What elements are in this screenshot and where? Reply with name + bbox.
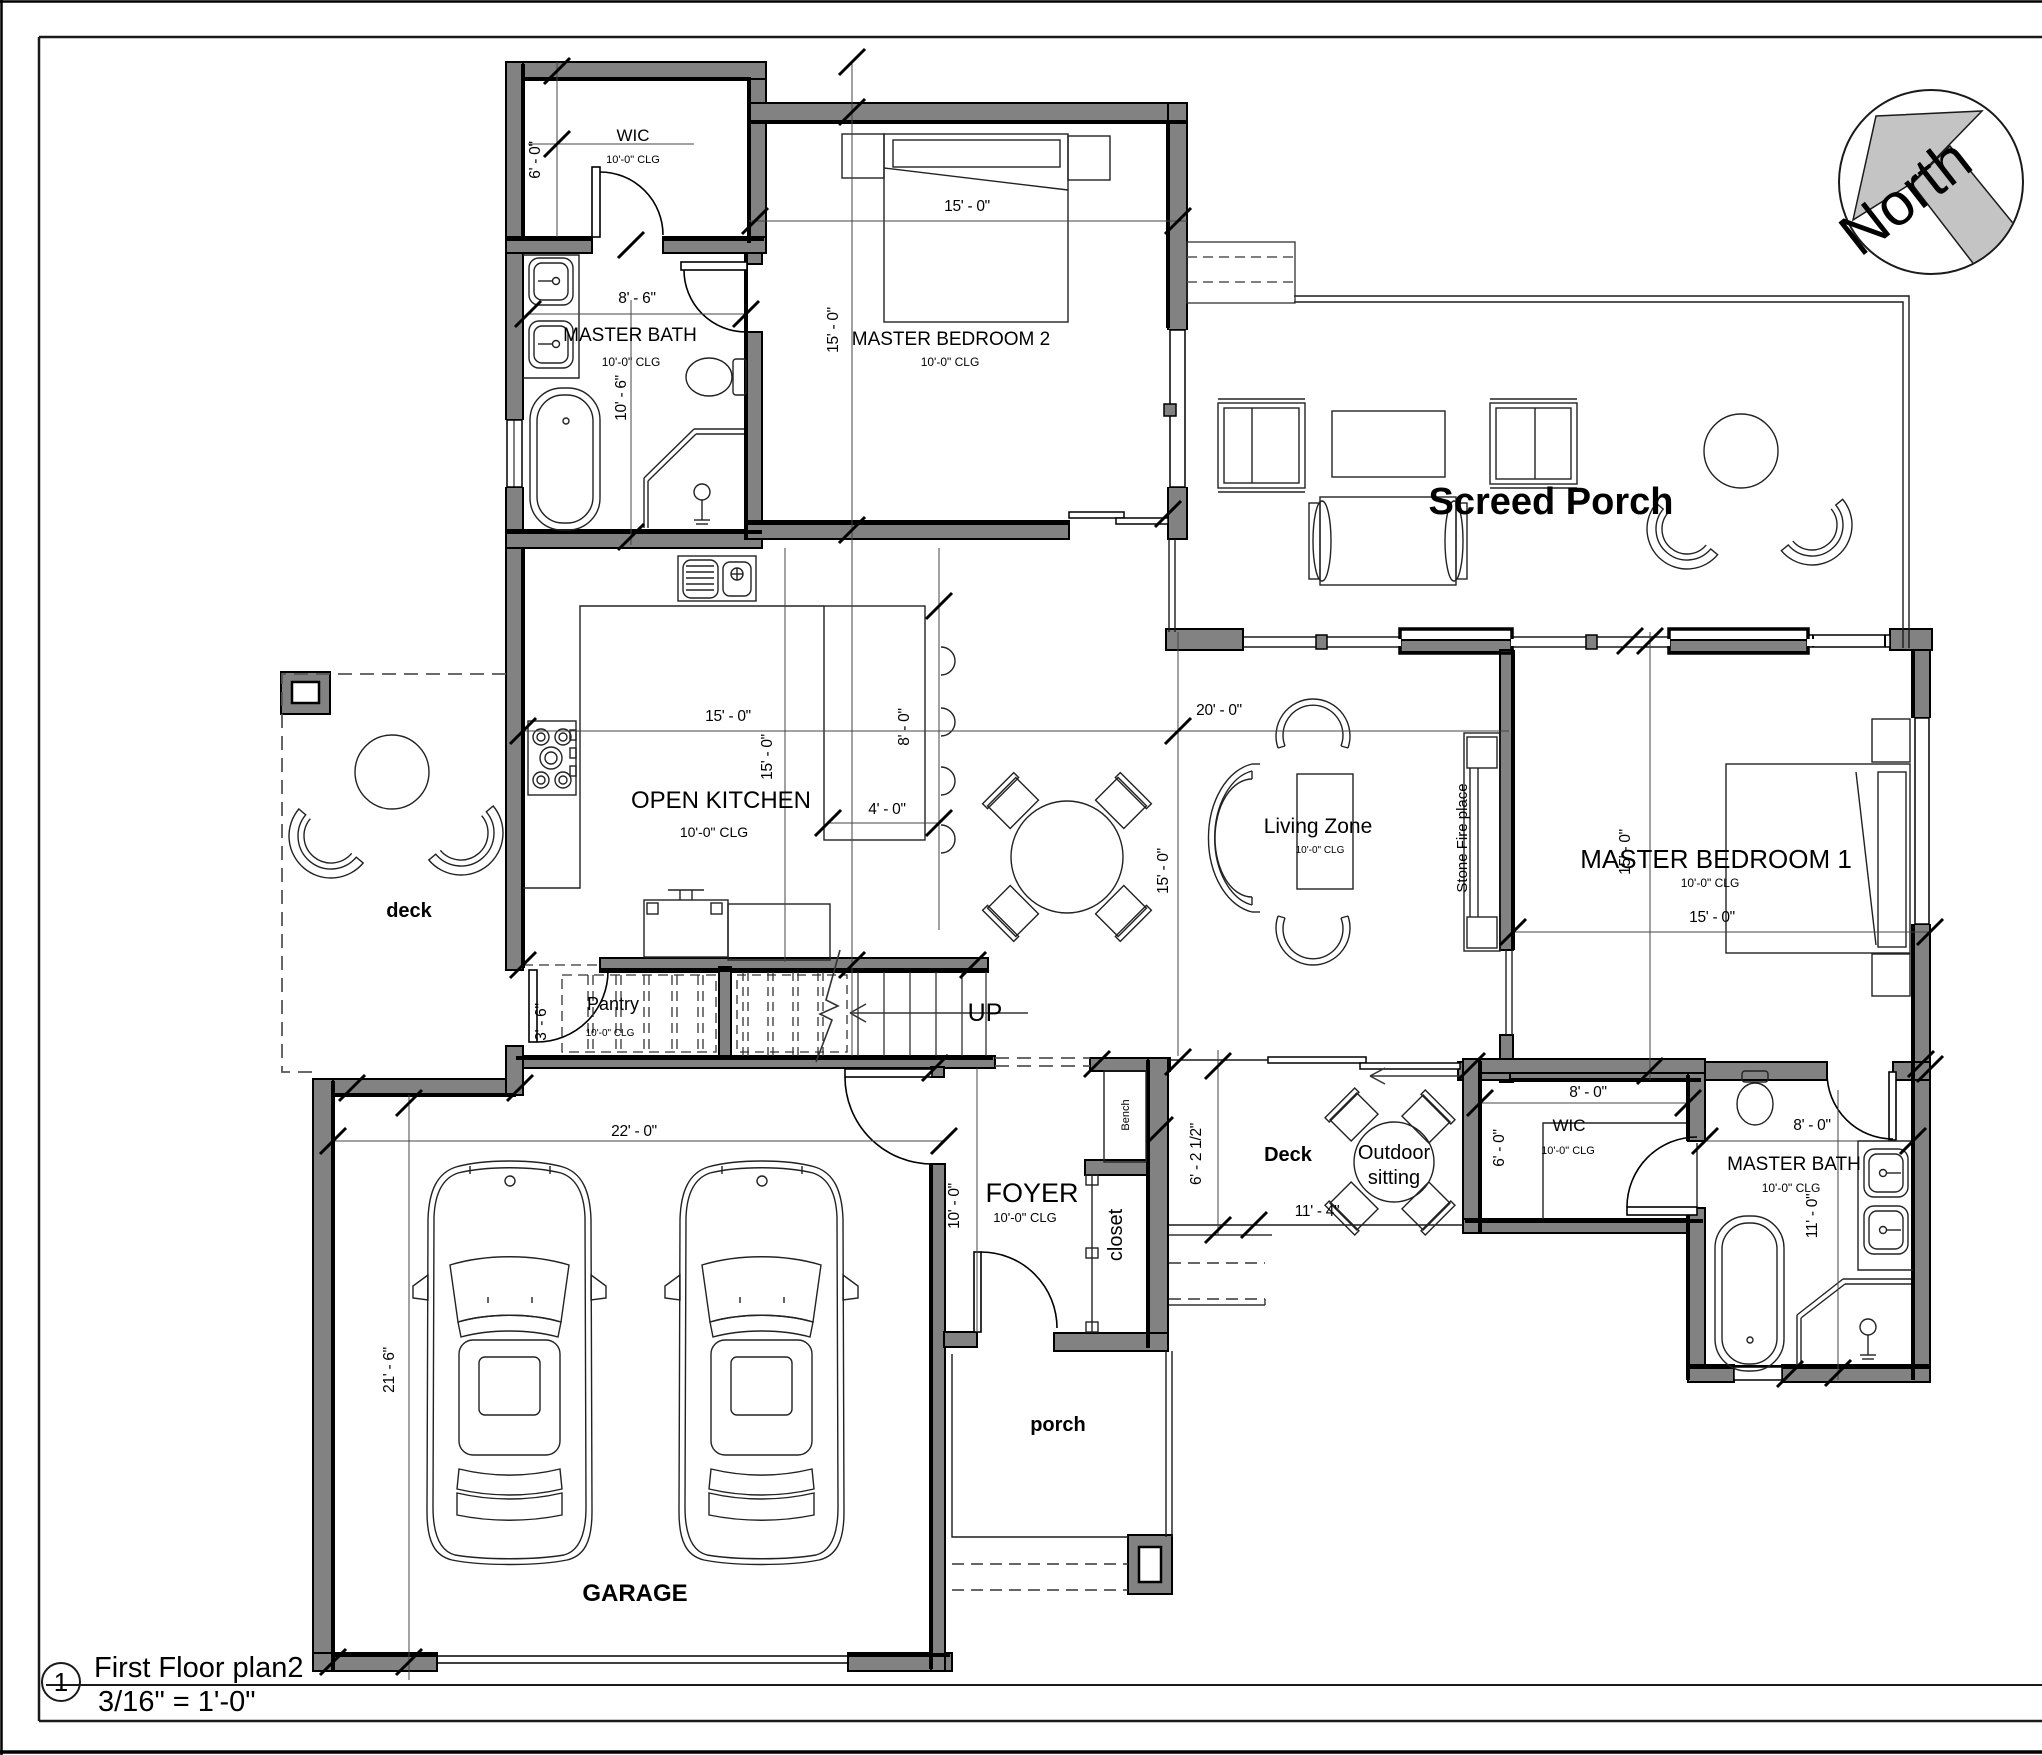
svg-text:10' - 6": 10' - 6" bbox=[613, 375, 630, 421]
svg-text:4' - 0": 4' - 0" bbox=[868, 801, 905, 818]
svg-text:21' - 6": 21' - 6" bbox=[381, 1347, 398, 1393]
svg-text:OPEN KITCHEN: OPEN KITCHEN bbox=[631, 787, 811, 814]
svg-text:10'-0" CLG: 10'-0" CLG bbox=[606, 154, 660, 166]
svg-text:15' - 0": 15' - 0" bbox=[1617, 829, 1634, 875]
svg-text:10'-0" CLG: 10'-0" CLG bbox=[1541, 1145, 1595, 1157]
svg-text:22' - 0": 22' - 0" bbox=[611, 1123, 657, 1140]
svg-text:15' - 0": 15' - 0" bbox=[705, 708, 751, 725]
svg-text:Bench: Bench bbox=[1120, 1099, 1132, 1130]
svg-text:11' - 4": 11' - 4" bbox=[1295, 1203, 1340, 1220]
svg-text:deck: deck bbox=[386, 900, 432, 922]
svg-text:20' - 0": 20' - 0" bbox=[1196, 702, 1242, 719]
svg-text:10'-0" CLG: 10'-0" CLG bbox=[993, 1210, 1056, 1225]
svg-text:Outdoor: Outdoor bbox=[1358, 1142, 1431, 1164]
svg-text:10'-0" CLG: 10'-0" CLG bbox=[1762, 1181, 1821, 1195]
svg-text:Stone Fire place: Stone Fire place bbox=[1454, 783, 1471, 892]
svg-text:8' - 0": 8' - 0" bbox=[1569, 1084, 1606, 1101]
svg-text:Living Zone: Living Zone bbox=[1264, 815, 1373, 838]
svg-text:6' - 0": 6' - 0" bbox=[1491, 1129, 1508, 1166]
svg-text:10'-0" CLG: 10'-0" CLG bbox=[586, 1028, 635, 1039]
svg-text:sitting: sitting bbox=[1368, 1167, 1420, 1189]
svg-text:MASTER BEDROOM 2: MASTER BEDROOM 2 bbox=[852, 329, 1050, 350]
svg-text:FOYER: FOYER bbox=[985, 1178, 1078, 1208]
svg-text:10'-0" CLG: 10'-0" CLG bbox=[1681, 876, 1740, 890]
svg-text:10'-0" CLG: 10'-0" CLG bbox=[1296, 845, 1345, 856]
svg-text:MASTER BATH: MASTER BATH bbox=[1727, 1154, 1861, 1175]
svg-text:15' - 0": 15' - 0" bbox=[825, 307, 842, 353]
svg-text:15' - 0": 15' - 0" bbox=[1155, 848, 1172, 894]
svg-text:WIC: WIC bbox=[616, 126, 649, 145]
svg-text:10'-0" CLG: 10'-0" CLG bbox=[921, 355, 980, 369]
svg-text:porch: porch bbox=[1030, 1414, 1086, 1436]
svg-text:1: 1 bbox=[54, 1667, 68, 1697]
svg-text:6' - 2 1/2": 6' - 2 1/2" bbox=[1188, 1123, 1205, 1185]
svg-text:GARAGE: GARAGE bbox=[582, 1580, 687, 1607]
svg-text:First Floor plan2: First Floor plan2 bbox=[94, 1652, 304, 1684]
svg-text:Deck: Deck bbox=[1264, 1144, 1313, 1166]
svg-text:8' - 6": 8' - 6" bbox=[618, 290, 655, 307]
svg-text:10'-0" CLG: 10'-0" CLG bbox=[680, 824, 748, 840]
svg-text:11' - 0": 11' - 0" bbox=[1804, 1194, 1821, 1239]
svg-text:8' - 0": 8' - 0" bbox=[896, 708, 913, 745]
svg-text:6' - 0": 6' - 0" bbox=[527, 141, 544, 178]
svg-text:Screed Porch: Screed Porch bbox=[1429, 481, 1674, 523]
svg-text:WIC: WIC bbox=[1552, 1116, 1585, 1135]
svg-text:15' - 0": 15' - 0" bbox=[1689, 909, 1735, 926]
svg-text:Pantry: Pantry bbox=[587, 994, 639, 1014]
svg-text:8' - 0": 8' - 0" bbox=[1793, 1117, 1830, 1134]
svg-text:3/16" = 1'-0": 3/16" = 1'-0" bbox=[98, 1686, 256, 1718]
svg-text:UP: UP bbox=[968, 999, 1003, 1027]
svg-text:MASTER BATH: MASTER BATH bbox=[563, 325, 697, 346]
svg-text:closet: closet bbox=[1105, 1208, 1127, 1261]
svg-text:15' - 0": 15' - 0" bbox=[944, 198, 990, 215]
svg-text:15' - 0": 15' - 0" bbox=[759, 734, 776, 780]
svg-text:3' - 6": 3' - 6" bbox=[533, 1003, 550, 1040]
svg-text:10' - 0": 10' - 0" bbox=[946, 1183, 963, 1229]
svg-text:10'-0" CLG: 10'-0" CLG bbox=[602, 355, 661, 369]
